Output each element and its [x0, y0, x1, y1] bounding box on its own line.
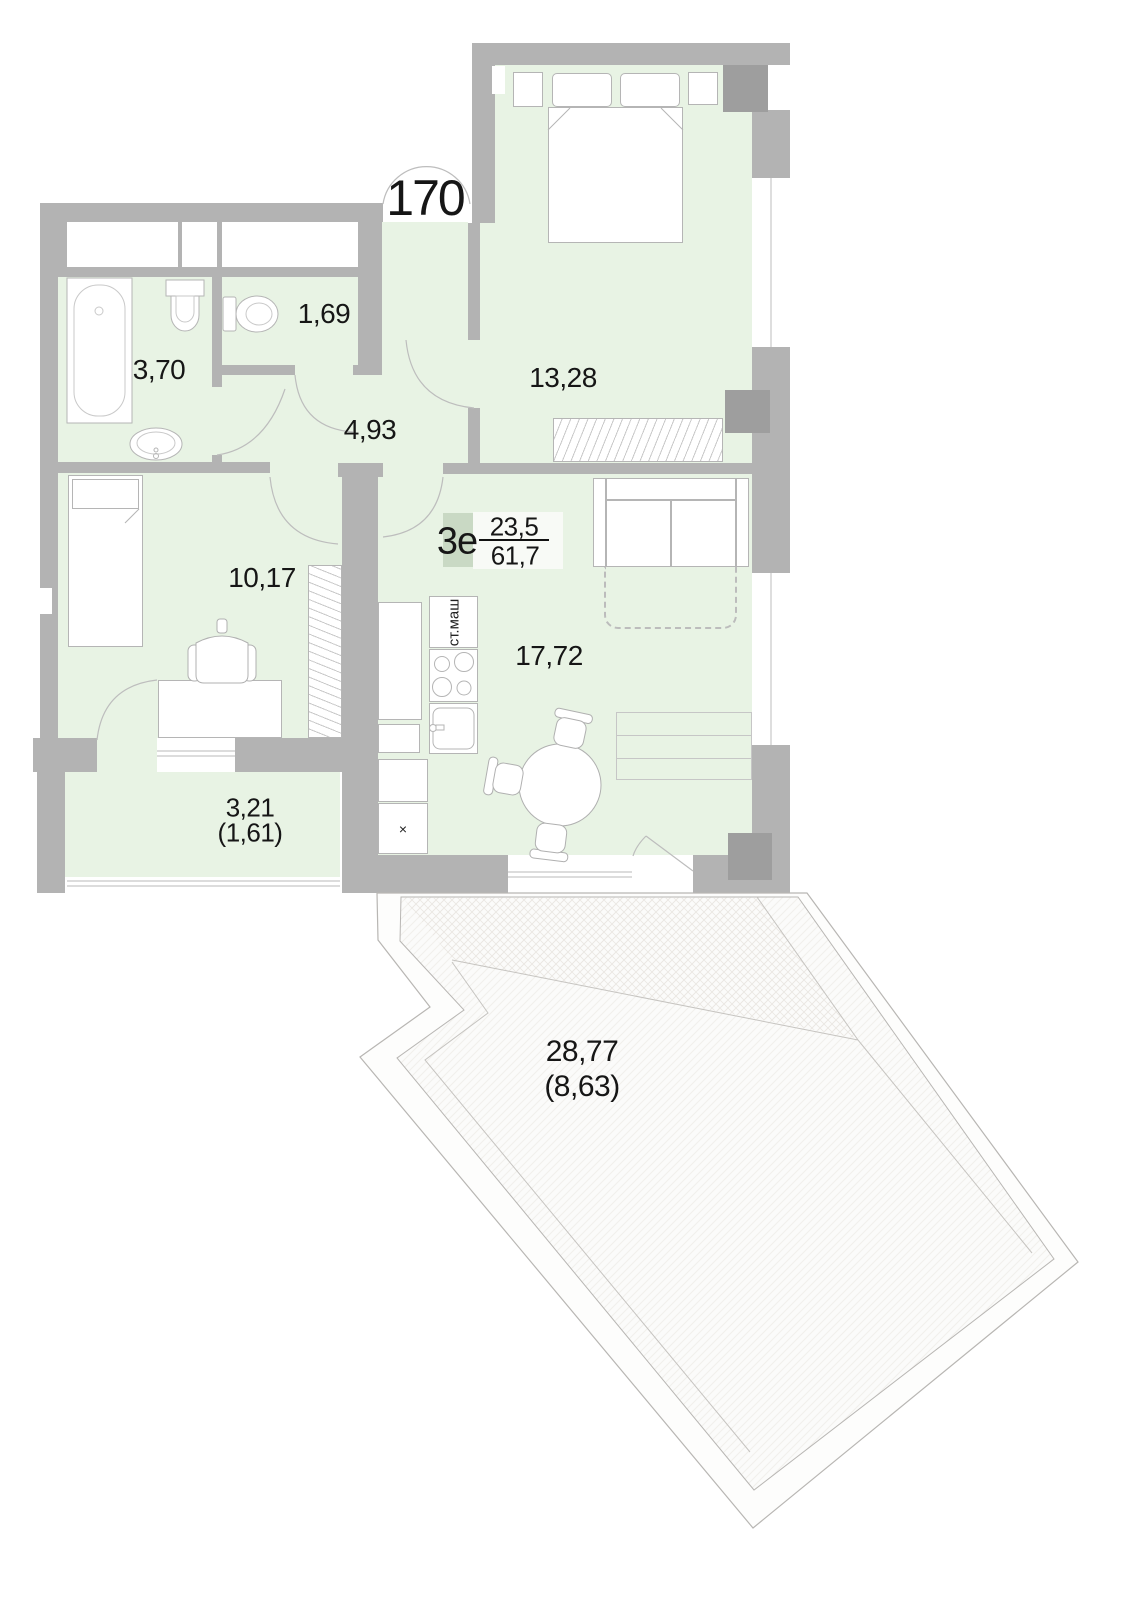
wall-top-band [40, 203, 383, 222]
room-area-room: 10,17 [228, 562, 296, 594]
pillow-1 [552, 73, 612, 107]
wall-right-1 [752, 110, 790, 180]
window-kitchen-bottom [508, 855, 632, 893]
kitchen-sink-unit [429, 703, 478, 754]
vent-mark: × [399, 821, 407, 837]
room-area-bedroom: 13,28 [529, 362, 597, 394]
bedroom-door-opening [468, 340, 480, 408]
window-top-1 [67, 222, 178, 267]
wall-bedroom-top [472, 43, 790, 65]
wall-hall-bedroom-stub [468, 408, 480, 463]
wall-bedroom-living [443, 463, 752, 474]
sofa-backrest [606, 478, 736, 500]
floor-plan: ст.маш [0, 0, 1124, 1600]
room-area-wc: 1,69 [298, 298, 351, 330]
kitchen-door-opening [383, 463, 443, 474]
sofa-bed-extension [604, 567, 737, 629]
wall-hall-bedroom [468, 223, 480, 340]
washing-machine: ст.маш [429, 596, 478, 648]
window-living [752, 573, 790, 745]
single-bed-pillow [72, 479, 139, 509]
wall-corridor [358, 222, 382, 372]
window-top-3 [222, 222, 358, 267]
column-bottom-right [728, 833, 772, 880]
sofa-armrest-right [736, 478, 749, 567]
terrace-area: 28,77 [546, 1035, 619, 1069]
wall-right-3 [752, 463, 790, 573]
nightstand-right [688, 72, 718, 105]
sideboard-shelf-line [617, 758, 751, 759]
left-wall-slot [40, 588, 52, 614]
plan-type: 3е [437, 521, 477, 564]
terrace-door-opening [632, 855, 693, 893]
wall-niche-filler-1 [40, 222, 67, 267]
sofa-armrest-left [593, 478, 606, 567]
wc-door-opening [295, 365, 353, 375]
sideboard [616, 712, 752, 780]
desk [158, 680, 282, 738]
window-bedroom [752, 178, 790, 347]
sofa-cushion-2 [671, 500, 736, 567]
wall-wc-bottom [222, 365, 295, 375]
kitchen-counter-low-1 [378, 759, 428, 802]
balcony-floor [65, 772, 340, 877]
terrace-area-coeff: (8,63) [544, 1070, 619, 1104]
wardrobe-bedroom [553, 418, 723, 462]
window-balcony-wall [157, 738, 235, 772]
wardrobe-room [308, 565, 342, 738]
fraction-line [479, 539, 549, 541]
bedroom-wall-slot [492, 66, 505, 94]
window-top-2 [182, 222, 217, 267]
wall-balcony-left [37, 743, 65, 893]
pillow-2 [620, 73, 680, 107]
wall-wc-bottom-right [353, 365, 382, 375]
terrace-outline [360, 893, 1078, 1528]
plan-area-bottom: 61,7 [491, 541, 540, 572]
room-area-bathroom: 3,70 [133, 354, 186, 386]
washing-machine-label: ст.маш [445, 598, 462, 646]
stove [429, 649, 478, 702]
balcony-door-opening [97, 738, 157, 772]
sofa-cushion-1 [606, 500, 671, 567]
kitchen-counter-small [378, 724, 420, 753]
column-top-right [723, 65, 768, 112]
balcony-area-coeff: (1,61) [218, 818, 283, 849]
sideboard-shelf-line [617, 735, 751, 736]
balcony-glazing [65, 877, 340, 895]
wall-balcony-top-right [235, 738, 342, 772]
wall-room-kitchen [342, 465, 378, 893]
nightstand-left [513, 72, 543, 107]
room-area-hall: 4,93 [344, 414, 397, 446]
double-bed [548, 107, 683, 243]
room-area-kitchen-living: 17,72 [515, 640, 583, 672]
bathroom-door-opening [212, 387, 222, 455]
plan-area-top: 23,5 [490, 512, 539, 543]
wall-left-upper [40, 267, 58, 473]
wall-bottom-left [342, 855, 508, 893]
kitchen-counter-tall [378, 602, 422, 720]
column-mid-right [725, 390, 770, 433]
wall-inner-band [40, 267, 358, 277]
wall-hall-bottom [40, 462, 270, 473]
apartment-number: 170 [386, 169, 463, 227]
